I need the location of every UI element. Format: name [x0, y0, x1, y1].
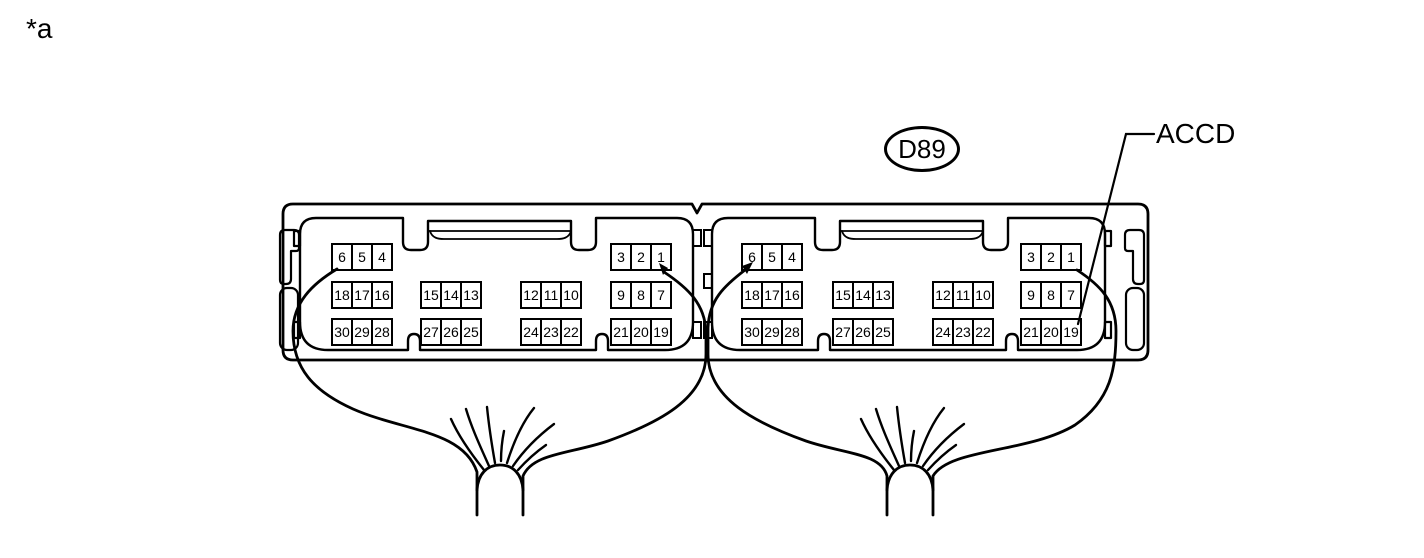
pin-cell: 14 [440, 283, 460, 307]
pin-cell: 25 [872, 320, 892, 344]
pin-cell: 18 [743, 283, 761, 307]
pin-cell: 17 [761, 283, 781, 307]
pin-block-right-27-26-25: 27 26 25 [832, 318, 894, 346]
pin-cell: 15 [834, 283, 852, 307]
pin-cell: 14 [852, 283, 872, 307]
pin-cell: 11 [540, 283, 560, 307]
pin-cell: 28 [371, 320, 391, 344]
pin-block-left-15-14-13: 15 14 13 [420, 281, 482, 309]
pin-cell: 27 [834, 320, 852, 344]
pin-block-right-3-2-1: 3 2 1 [1020, 243, 1082, 271]
bundle-right-strands [861, 407, 964, 470]
pin-block-left-24-23-22: 24 23 22 [520, 318, 582, 346]
pin-cell: 8 [1040, 283, 1060, 307]
pin-block-left-27-26-25: 27 26 25 [420, 318, 482, 346]
pin-cell: 7 [650, 283, 670, 307]
pin-block-right-30-29-28: 30 29 28 [741, 318, 803, 346]
pin-block-right-24-23-22: 24 23 22 [932, 318, 994, 346]
footnote-label: *a [26, 13, 52, 45]
pin-cell: 3 [612, 245, 630, 269]
pin-cell: 18 [333, 283, 351, 307]
pin-cell: 26 [852, 320, 872, 344]
pin-cell: 13 [460, 283, 480, 307]
pin-cell: 16 [781, 283, 801, 307]
pin-cell: 10 [560, 283, 580, 307]
pin-cell: 17 [351, 283, 371, 307]
pin-cell: 28 [781, 320, 801, 344]
pin-cell: 22 [972, 320, 992, 344]
pin-block-right-12-11-10: 12 11 10 [932, 281, 994, 309]
pin-cell: 12 [934, 283, 952, 307]
pin-block-right-15-14-13: 15 14 13 [832, 281, 894, 309]
pin-block-right-18-17-16: 18 17 16 [741, 281, 803, 309]
pin-cell: 11 [952, 283, 972, 307]
pin-cell: 6 [333, 245, 351, 269]
pin-cell: 19 [1060, 320, 1080, 344]
pin-block-left-9-8-7: 9 8 7 [610, 281, 672, 309]
pin-cell: 1 [1060, 245, 1080, 269]
pin-cell: 22 [560, 320, 580, 344]
pin-cell: 29 [351, 320, 371, 344]
pin-cell: 21 [612, 320, 630, 344]
latch-left [428, 231, 571, 239]
pin-block-right-6-5-4: 6 5 4 [741, 243, 803, 271]
pin-cell: 2 [1040, 245, 1060, 269]
pin-cell: 24 [522, 320, 540, 344]
pin-block-left-12-11-10: 12 11 10 [520, 281, 582, 309]
pin-cell: 5 [761, 245, 781, 269]
pin-cell: 4 [781, 245, 801, 269]
pin-cell: 13 [872, 283, 892, 307]
pin-block-right-21-20-19: 21 20 19 [1020, 318, 1082, 346]
pin-cell: 16 [371, 283, 391, 307]
pin-cell: 9 [1022, 283, 1040, 307]
pin-cell: 9 [612, 283, 630, 307]
housing-clips-right [1105, 230, 1144, 350]
pin-cell: 8 [630, 283, 650, 307]
pin-cell: 19 [650, 320, 670, 344]
accd-leader-line [1078, 134, 1154, 324]
pin-block-left-6-5-4: 6 5 4 [331, 243, 393, 271]
pin-cell: 1 [650, 245, 670, 269]
pin-cell: 20 [1040, 320, 1060, 344]
housing-outline [280, 204, 1148, 360]
pin-cell: 24 [934, 320, 952, 344]
latch-right [840, 231, 983, 239]
pin-block-left-30-29-28: 30 29 28 [331, 318, 393, 346]
pin-cell: 6 [743, 245, 761, 269]
connector-code-text: D89 [898, 134, 946, 165]
pin-cell: 21 [1022, 320, 1040, 344]
connector-diagram [0, 0, 1424, 558]
pin-cell: 3 [1022, 245, 1040, 269]
pin-cell: 15 [422, 283, 440, 307]
connector-code-badge: D89 [884, 126, 960, 172]
pin-block-left-18-17-16: 18 17 16 [331, 281, 393, 309]
pin-cell: 30 [743, 320, 761, 344]
pin-cell: 4 [371, 245, 391, 269]
pin-cell: 23 [540, 320, 560, 344]
pin-block-right-9-8-7: 9 8 7 [1020, 281, 1082, 309]
pin-cell: 5 [351, 245, 371, 269]
pin-cell: 23 [952, 320, 972, 344]
pin-block-left-3-2-1: 3 2 1 [610, 243, 672, 271]
pin-cell: 2 [630, 245, 650, 269]
pin-cell: 26 [440, 320, 460, 344]
pin-cell: 7 [1060, 283, 1080, 307]
pin-cell: 10 [972, 283, 992, 307]
pin-cell: 12 [522, 283, 540, 307]
pin-cell: 29 [761, 320, 781, 344]
pin-cell: 20 [630, 320, 650, 344]
pin-cell: 27 [422, 320, 440, 344]
pin-block-left-21-20-19: 21 20 19 [610, 318, 672, 346]
terminal-label: ACCD [1156, 118, 1235, 150]
pin-cell: 30 [333, 320, 351, 344]
pin-cell: 25 [460, 320, 480, 344]
